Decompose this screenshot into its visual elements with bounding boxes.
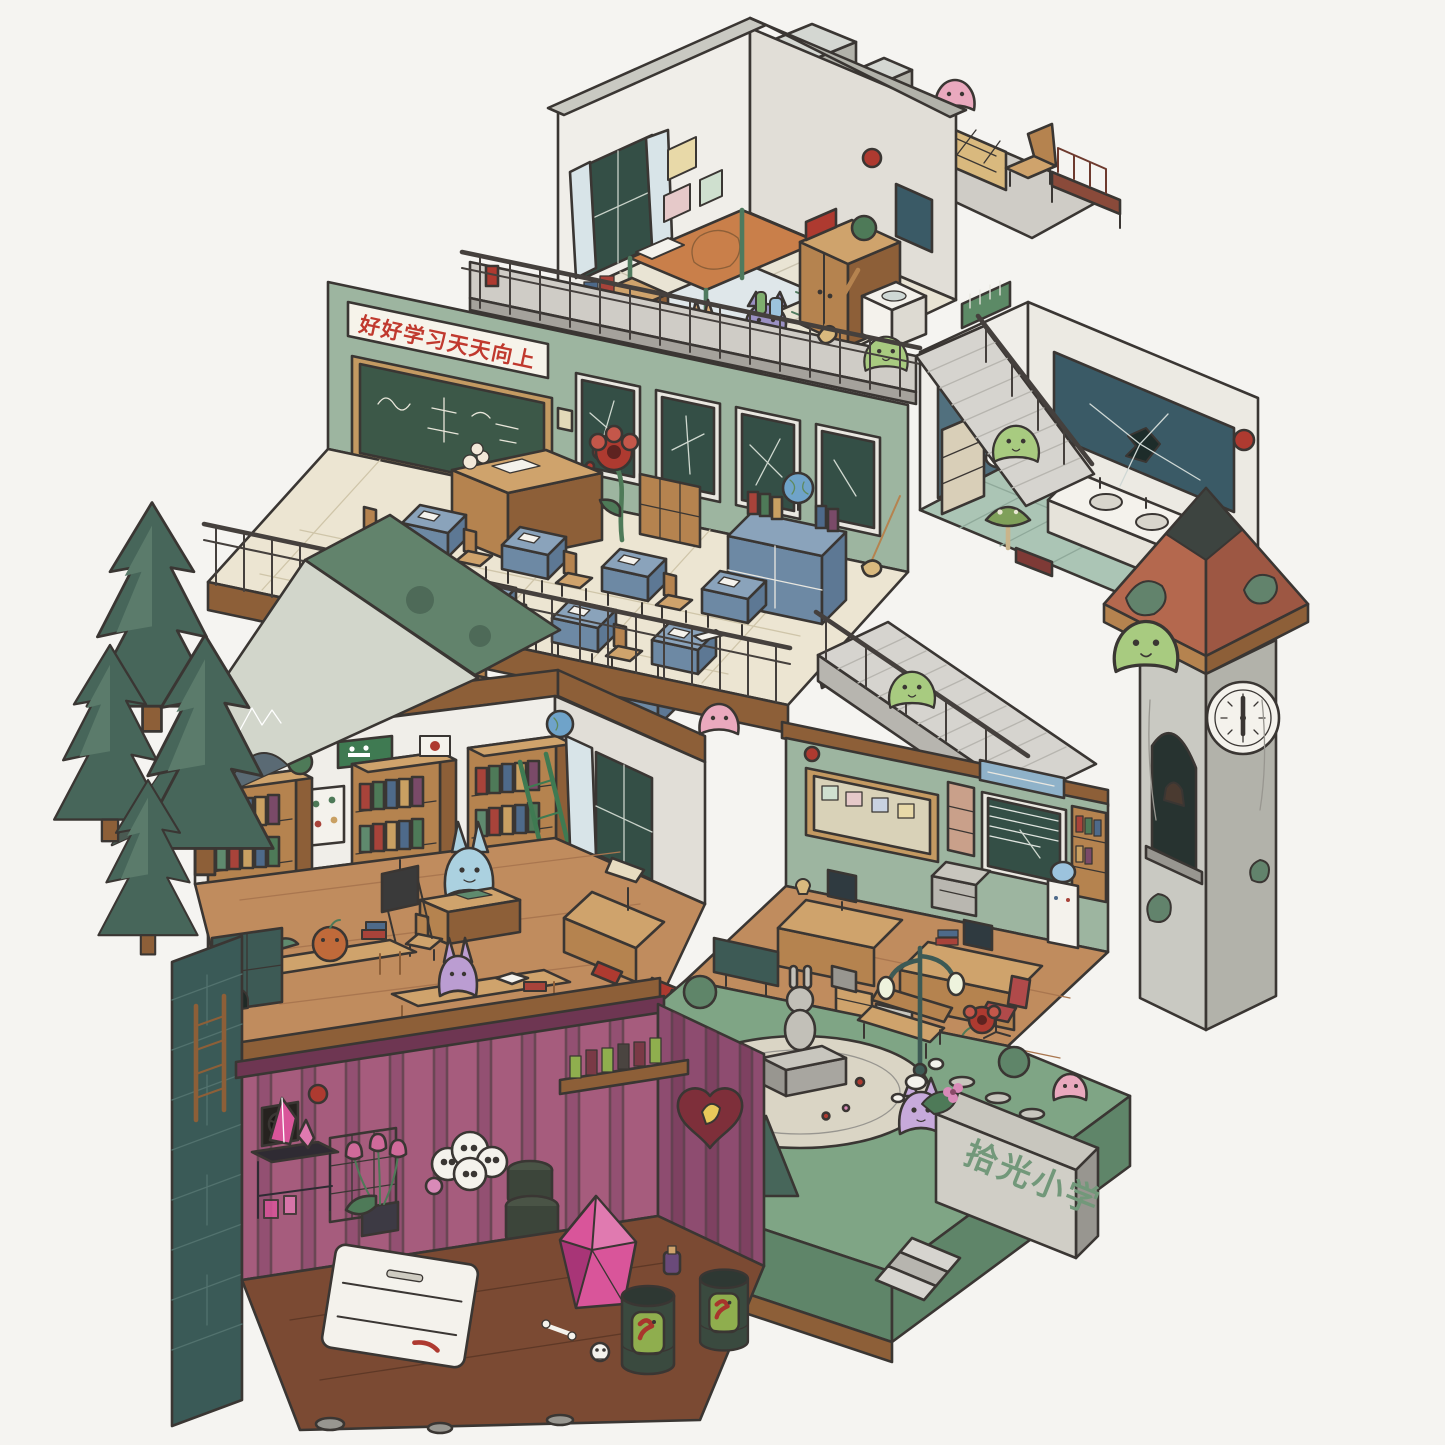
laptop[interactable] <box>964 920 992 950</box>
hidden-object-game-scene: 好好学习天天向上 <box>0 0 1445 1445</box>
moss-patch <box>1147 894 1170 922</box>
first-aid-box[interactable] <box>420 736 450 756</box>
isometric-school-illustration: 好好学习天天向上 <box>0 0 1445 1445</box>
red-ball-wall[interactable] <box>805 747 819 761</box>
clock-tower <box>1104 488 1308 1030</box>
white-cabinet[interactable] <box>321 1243 479 1368</box>
ghost-pink-small[interactable] <box>1053 1074 1086 1100</box>
water-dispenser[interactable] <box>1048 862 1078 948</box>
pink-daisy <box>426 1178 442 1194</box>
cubby-bookcase[interactable] <box>640 474 700 547</box>
moss-patch <box>1250 860 1269 882</box>
clock-icon <box>1207 682 1279 754</box>
specimen-tank-1[interactable] <box>622 1286 674 1374</box>
specimen-tank-2[interactable] <box>700 1270 748 1351</box>
study-desk[interactable] <box>420 888 520 944</box>
red-orb[interactable] <box>309 1085 327 1103</box>
globe-on-shelf[interactable] <box>547 711 573 737</box>
life-ring[interactable] <box>1234 430 1254 450</box>
monitor[interactable] <box>828 870 856 902</box>
hanging-organizer[interactable] <box>948 782 974 856</box>
plant-on-wardrobe[interactable] <box>852 216 876 240</box>
trophy[interactable] <box>796 879 810 894</box>
light-switch[interactable] <box>558 408 572 431</box>
trash-bin[interactable] <box>832 966 856 992</box>
wall-clock-red[interactable] <box>863 149 881 167</box>
skull[interactable] <box>591 1343 609 1361</box>
